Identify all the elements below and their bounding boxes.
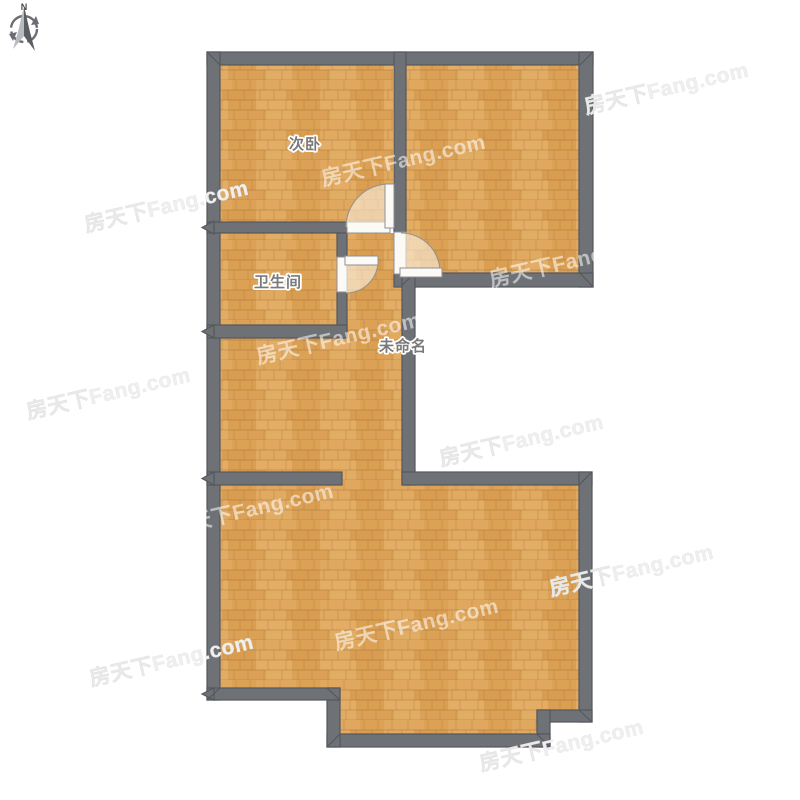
room-label-bathroom: 卫生间	[254, 273, 302, 291]
floor-plan-svg: N	[0, 0, 800, 800]
wall-bottom-left	[207, 688, 340, 700]
wall-bathroom-right-upper	[337, 233, 347, 257]
watermark-text: 房天下Fang.com	[437, 410, 606, 471]
room-label-unnamed: 未命名	[378, 337, 427, 355]
watermark-text: 房天下Fang.com	[24, 363, 193, 424]
compass-needle-dark	[24, 6, 35, 51]
floor-plan-canvas: N	[0, 0, 800, 800]
wall-mid-vertical	[394, 52, 406, 233]
wall-left	[207, 52, 220, 700]
wall-right-lower	[579, 472, 592, 722]
floor-room-right	[406, 65, 579, 273]
door-leaf	[400, 268, 442, 277]
wall-column-right	[402, 273, 415, 485]
floor-unnamed-room	[220, 338, 402, 472]
door-leaf	[345, 256, 378, 265]
door-leaf	[385, 184, 394, 228]
floor-opening	[342, 472, 402, 485]
watermark-text: 房天下Fang.com	[582, 58, 751, 119]
wall-living-top-right	[402, 472, 592, 485]
compass: N	[9, 2, 39, 51]
room-label-bedroom2: 次卧	[289, 135, 321, 153]
wall-bedroom2-bottom	[207, 222, 347, 233]
